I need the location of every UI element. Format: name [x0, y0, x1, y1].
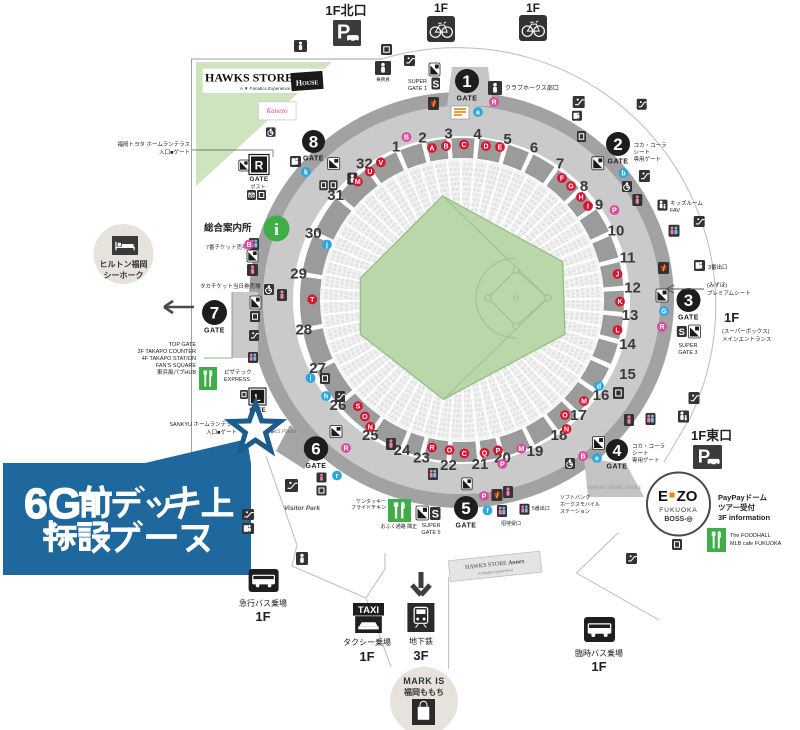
svg-text:コカ・コーラ: コカ・コーラ: [632, 443, 665, 450]
svg-text:P: P: [500, 461, 505, 468]
svg-text:TOP GATE: TOP GATE: [169, 342, 197, 348]
svg-text:招待受口: 招待受口: [501, 520, 521, 527]
svg-text:ステーション: ステーション: [560, 509, 590, 515]
svg-text:Kanezo: Kanezo: [266, 107, 289, 115]
svg-text:7: 7: [556, 156, 564, 173]
svg-text:コカ・コーラ: コカ・コーラ: [634, 142, 667, 149]
svg-text:1: 1: [462, 72, 471, 91]
svg-text:1F東口: 1F東口: [691, 428, 732, 443]
svg-text:シート: シート: [634, 150, 651, 156]
svg-text:i: i: [310, 376, 312, 383]
svg-text:GATE 5: GATE 5: [421, 530, 440, 536]
svg-text:入口■ゲート: 入口■ゲート: [206, 428, 237, 436]
svg-text:P: P: [482, 494, 487, 501]
svg-text:5: 5: [461, 499, 470, 518]
svg-text:プレミアムシート: プレミアムシート: [707, 290, 751, 297]
svg-text:r: r: [336, 473, 339, 480]
svg-text:B: B: [404, 135, 409, 142]
svg-text:(みずほ): (みずほ): [707, 281, 727, 289]
svg-text:ホークスモバイル: ホークスモバイル: [560, 502, 600, 508]
svg-text:4: 4: [613, 443, 622, 460]
svg-text:19: 19: [527, 443, 544, 460]
svg-text:1F: 1F: [434, 1, 448, 15]
svg-text:(スーパーボックス): (スーパーボックス): [722, 327, 770, 335]
svg-text:17: 17: [570, 407, 587, 424]
svg-text:3: 3: [444, 126, 452, 143]
svg-text:M: M: [518, 446, 524, 453]
svg-text:7番チケット売場: 7番チケット売場: [206, 243, 248, 251]
svg-text:C: C: [461, 142, 466, 149]
svg-text:メインエントランス: メインエントランス: [722, 336, 771, 343]
svg-text:P: P: [612, 208, 617, 215]
svg-text:SUPER: SUPER: [408, 79, 427, 85]
svg-text:h: h: [324, 394, 328, 401]
svg-text:ポスト: ポスト: [250, 184, 265, 191]
svg-text:S: S: [679, 327, 685, 337]
svg-text:11: 11: [620, 250, 636, 267]
svg-text:N: N: [368, 424, 373, 431]
svg-text:13: 13: [622, 307, 639, 324]
svg-text:B: B: [246, 242, 251, 249]
svg-text:O: O: [447, 448, 453, 455]
svg-text:ケンタッキー: ケンタッキー: [356, 498, 386, 505]
svg-text:28: 28: [295, 322, 312, 339]
svg-text:3: 3: [684, 291, 693, 310]
svg-text:9: 9: [595, 197, 603, 214]
svg-text:1F: 1F: [359, 649, 374, 664]
svg-text:GATE: GATE: [607, 464, 628, 471]
svg-text:東浜風パブHUB: 東浜風パブHUB: [157, 368, 196, 376]
svg-text:O: O: [362, 414, 368, 421]
svg-text:GATE: GATE: [306, 463, 327, 470]
svg-text:23: 23: [413, 450, 430, 467]
svg-text:P: P: [496, 448, 501, 455]
svg-text:3F information: 3F information: [718, 513, 771, 522]
svg-text:EXPRESS: EXPRESS: [224, 377, 250, 383]
svg-text:シーホーク: シーホーク: [104, 270, 144, 280]
svg-text:3F: 3F: [413, 648, 428, 663]
svg-text:6: 6: [530, 140, 538, 157]
svg-text:ソフトバンク: ソフトバンク: [560, 495, 590, 501]
svg-text:M: M: [355, 179, 361, 186]
svg-text:Q: Q: [482, 450, 488, 457]
svg-text:乗務員: 乗務員: [376, 76, 390, 83]
svg-text:1F: 1F: [724, 310, 739, 325]
svg-text:GATE: GATE: [303, 156, 324, 163]
svg-text:15: 15: [619, 366, 636, 383]
svg-text:5番出口: 5番出口: [532, 505, 550, 512]
svg-text:O: O: [562, 413, 568, 420]
svg-text:e: e: [595, 456, 599, 463]
svg-text:3番出口: 3番出口: [708, 263, 728, 271]
svg-text:専用ゲート: 専用ゲート: [634, 155, 662, 163]
svg-text:臨時バス乗場: 臨時バス乗場: [575, 648, 623, 658]
svg-text:2: 2: [418, 130, 426, 147]
svg-text:TAXI: TAXI: [358, 605, 379, 616]
svg-text:J: J: [616, 272, 620, 279]
svg-text:E: E: [658, 488, 668, 505]
svg-text:ピザテック: ピザテック: [224, 369, 252, 376]
svg-text:PayPayドーム: PayPayドーム: [718, 493, 767, 502]
svg-text:24: 24: [394, 442, 411, 459]
svg-text:N: N: [564, 427, 569, 434]
svg-text:1: 1: [392, 139, 400, 156]
svg-text:HAWKS STORE TRAVEL: HAWKS STORE TRAVEL: [588, 486, 642, 491]
svg-text:GATE: GATE: [608, 159, 629, 166]
svg-text:R: R: [659, 324, 664, 331]
svg-text:総合案内所: 総合案内所: [204, 222, 252, 234]
svg-text:地下鉄: 地下鉄: [409, 636, 433, 646]
svg-text:1F: 1F: [255, 609, 270, 624]
svg-text:Visitor Park: Visitor Park: [284, 505, 320, 512]
svg-text:I: I: [587, 204, 589, 211]
svg-text:GATE: GATE: [204, 328, 225, 335]
svg-text:1F北口: 1F北口: [325, 3, 366, 18]
svg-text:a: a: [476, 110, 480, 117]
svg-text:キッズルーム: キッズルーム: [670, 199, 703, 207]
svg-text:HAWKS STORE: HAWKS STORE: [205, 71, 293, 85]
svg-text:b: b: [621, 171, 625, 178]
svg-text:急行バス乗場: 急行バス乗場: [239, 598, 287, 608]
svg-text:K: K: [617, 299, 622, 306]
svg-text:30: 30: [305, 225, 322, 242]
svg-text:D: D: [483, 144, 488, 151]
svg-text:29: 29: [290, 266, 307, 283]
svg-text:j: j: [325, 242, 328, 249]
svg-text:S: S: [432, 79, 439, 90]
svg-text:G: G: [661, 309, 667, 316]
svg-text:U: U: [367, 169, 372, 176]
svg-text:i: i: [274, 220, 279, 239]
svg-text:S: S: [432, 509, 439, 521]
svg-text:C: C: [462, 451, 467, 458]
svg-text:SUPER: SUPER: [422, 523, 441, 529]
svg-text:SUPER: SUPER: [679, 343, 698, 349]
svg-text:GATE: GATE: [456, 523, 477, 530]
svg-text:8: 8: [309, 133, 318, 152]
svg-text:◆KS Planta: ◆KS Planta: [270, 429, 296, 435]
svg-text:FAV: FAV: [670, 208, 680, 214]
svg-text:フライドチキン: フライドチキン: [351, 505, 386, 511]
svg-text:GATE: GATE: [249, 176, 268, 183]
svg-text:10: 10: [608, 223, 625, 240]
svg-text:k: k: [304, 170, 308, 177]
svg-text:22: 22: [440, 457, 457, 474]
svg-text:入口■ゲート: 入口■ゲート: [159, 148, 190, 156]
svg-text:GATE: GATE: [457, 96, 478, 103]
svg-text:MARK IS: MARK IS: [403, 676, 445, 686]
svg-text:A: A: [429, 146, 434, 153]
svg-text:R: R: [491, 100, 496, 107]
svg-text:R: R: [429, 445, 434, 452]
svg-text:12: 12: [624, 280, 641, 297]
svg-text:B: B: [443, 144, 448, 151]
svg-text:The FOODHALL: The FOODHALL: [730, 533, 771, 539]
svg-text:4F TAKAPO STATION: 4F TAKAPO STATION: [142, 356, 196, 362]
svg-text:ツアー受付: ツアー受付: [718, 502, 756, 512]
svg-text:S: S: [356, 404, 361, 411]
svg-text:福岡トヨタ ホームランテラス: 福岡トヨタ ホームランテラス: [118, 140, 190, 148]
svg-text:T: T: [310, 297, 315, 304]
svg-text:3F TAKAPO COUNTER: 3F TAKAPO COUNTER: [138, 349, 197, 355]
svg-text:専用ゲート: 専用ゲート: [632, 456, 660, 464]
svg-text:G: G: [568, 184, 574, 191]
svg-text:ZO: ZO: [677, 488, 698, 505]
svg-text:R: R: [255, 159, 264, 173]
svg-text:おふく通路 隣正: おふく通路 隣正: [381, 523, 417, 530]
svg-text:d: d: [597, 384, 601, 391]
svg-text:L: L: [615, 328, 620, 335]
svg-text:1F: 1F: [526, 1, 540, 15]
svg-text:BOSS-◎: BOSS-◎: [664, 516, 692, 523]
svg-text:GATE 1: GATE 1: [408, 86, 427, 92]
svg-text:2: 2: [613, 135, 622, 154]
svg-text:14: 14: [619, 336, 636, 353]
svg-text:MLB cafe FUKUOKA: MLB cafe FUKUOKA: [730, 541, 782, 547]
svg-text:6: 6: [311, 440, 320, 459]
svg-text:クラブホークス部口: クラブホークス部口: [505, 84, 559, 92]
svg-text:E: E: [498, 145, 503, 152]
svg-text:B: B: [580, 454, 585, 461]
svg-text:R: R: [343, 446, 348, 453]
svg-text:7: 7: [210, 304, 219, 323]
svg-text:M: M: [581, 399, 587, 406]
svg-text:4: 4: [473, 126, 482, 143]
svg-text:シート: シート: [632, 451, 649, 457]
svg-text:SANKYU ホームランテラス: SANKYU ホームランテラス: [169, 421, 237, 428]
svg-text:タカチケット当日券売場: タカチケット当日券売場: [200, 282, 261, 290]
svg-text:GATE: GATE: [678, 315, 699, 322]
svg-text:V: V: [378, 160, 383, 167]
svg-text:21: 21: [472, 456, 489, 473]
svg-text:GATE 3: GATE 3: [678, 350, 697, 356]
svg-text:F: F: [560, 176, 565, 183]
svg-text:FAN'S SQUARE: FAN'S SQUARE: [156, 363, 197, 369]
svg-text:1F: 1F: [591, 659, 606, 674]
svg-text:タクシー乗場: タクシー乗場: [343, 637, 391, 647]
svg-text:福岡ももち: 福岡ももち: [403, 687, 444, 697]
svg-text:H: H: [578, 195, 583, 202]
svg-text:ヒルトン福岡: ヒルトン福岡: [100, 259, 148, 269]
svg-text:FUKUOKA: FUKUOKA: [659, 507, 697, 514]
svg-text:A ▼ Fanatics Experience: A ▼ Fanatics Experience: [240, 86, 291, 91]
